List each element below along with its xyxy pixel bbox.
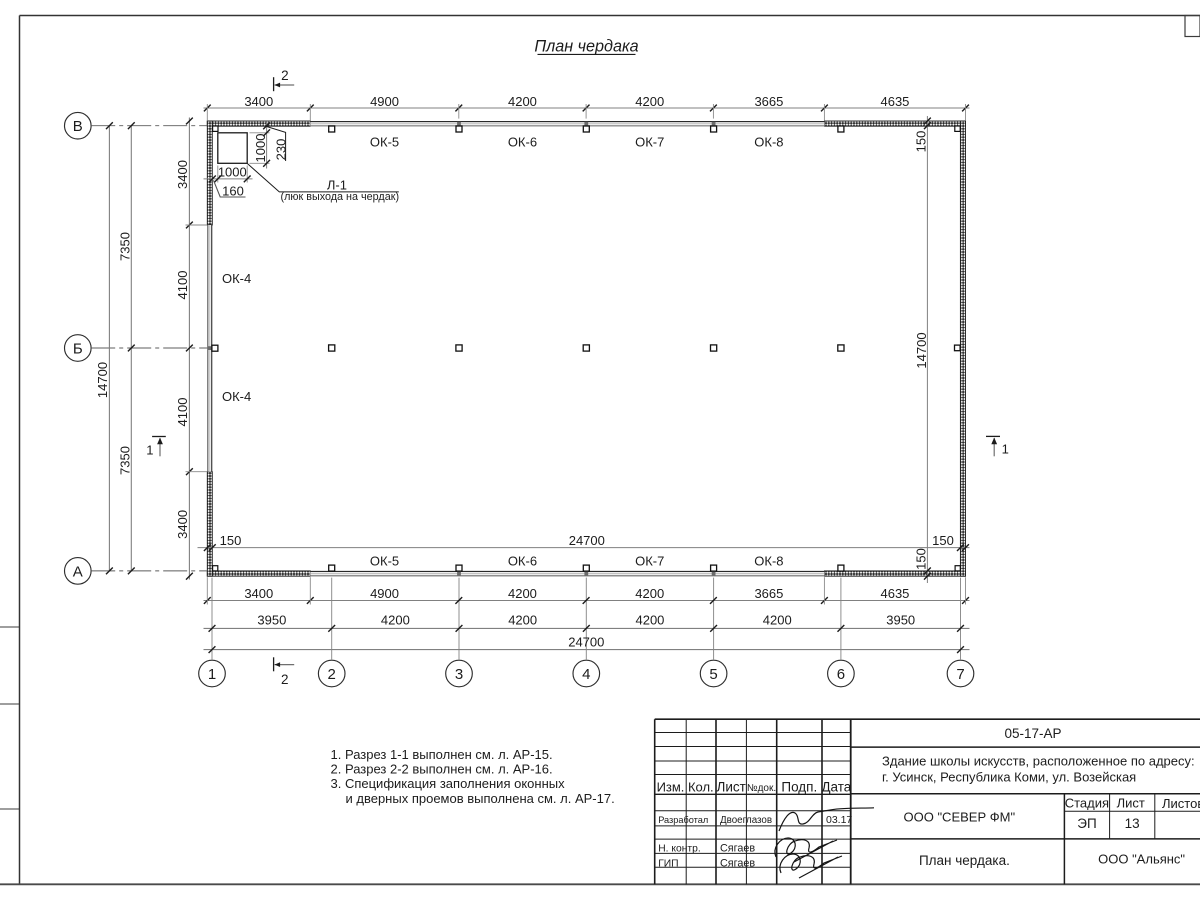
svg-text:7350: 7350 [117,446,132,475]
svg-text:150: 150 [914,131,929,153]
svg-text:7350: 7350 [117,232,132,261]
svg-text:ОК-7: ОК-7 [635,553,664,568]
svg-text:150: 150 [932,533,954,548]
svg-text:1: 1 [208,666,216,683]
svg-text:Кол.: Кол. [688,780,714,795]
svg-text:Н. контр.: Н. контр. [658,844,701,855]
svg-text:14700: 14700 [914,332,929,368]
svg-text:4200: 4200 [508,613,537,628]
svg-text:4: 4 [582,666,590,683]
svg-text:3665: 3665 [754,94,783,109]
svg-text:Лист: Лист [717,780,746,795]
svg-text:г. Усинск, Республика Коми, ул: г. Усинск, Республика Коми, ул. Возейска… [882,770,1136,785]
svg-text:Стадия: Стадия [1065,796,1109,811]
svg-text:1000: 1000 [218,164,247,179]
svg-text:В: В [73,118,83,135]
svg-text:ОК-6: ОК-6 [508,134,537,149]
svg-text:4635: 4635 [880,586,909,601]
svg-text:4200: 4200 [381,613,410,628]
svg-text:150: 150 [914,548,929,570]
svg-text:7: 7 [956,666,964,683]
svg-text:ЭП: ЭП [1077,816,1096,831]
svg-text:3950: 3950 [886,613,915,628]
svg-text:ООО "СЕВЕР ФМ": ООО "СЕВЕР ФМ" [904,810,1016,825]
svg-text:24700: 24700 [569,533,605,548]
svg-text:1000: 1000 [253,134,268,163]
svg-text:Дата: Дата [821,780,851,795]
svg-text:2: 2 [328,666,336,683]
svg-text:4200: 4200 [635,94,664,109]
svg-text:150: 150 [220,533,242,548]
svg-text:3400: 3400 [244,586,273,601]
svg-text:ОК-5: ОК-5 [370,553,399,568]
svg-text:3665: 3665 [754,586,783,601]
svg-text:План чердака: План чердака [534,38,638,56]
svg-text:1: 1 [146,442,153,457]
svg-text:4635: 4635 [880,94,909,109]
svg-text:Листов: Листов [1162,796,1200,811]
svg-text:ОК-5: ОК-5 [370,134,399,149]
svg-text:ОК-7: ОК-7 [635,134,664,149]
svg-text:Л-1: Л-1 [327,177,347,192]
svg-text:ОК-4: ОК-4 [222,271,251,286]
svg-text:4200: 4200 [508,586,537,601]
svg-text:ГИП: ГИП [658,858,678,869]
svg-text:ОК-8: ОК-8 [754,134,783,149]
svg-text:ОК-8: ОК-8 [754,553,783,568]
svg-text:03.17: 03.17 [826,814,852,826]
svg-text:4900: 4900 [370,94,399,109]
svg-text:24700: 24700 [568,634,604,649]
svg-text:3. Спецификация заполнения око: 3. Спецификация заполнения оконных [331,776,566,791]
svg-text:Здание школы искусств, располо: Здание школы искусств, расположенное по … [882,754,1195,769]
svg-text:4200: 4200 [635,613,664,628]
svg-text:А: А [73,563,83,580]
svg-text:2: 2 [281,672,289,687]
svg-text:4200: 4200 [635,586,664,601]
svg-text:План чердака.: План чердака. [919,853,1010,868]
svg-text:ООО "Альянс": ООО "Альянс" [1098,852,1185,867]
svg-text:13: 13 [1125,816,1140,831]
svg-text:Сягаев: Сягаев [720,843,755,855]
svg-text:Б: Б [73,340,83,357]
svg-text:3: 3 [455,666,463,683]
svg-text:14700: 14700 [95,362,110,398]
svg-text:3950: 3950 [257,613,286,628]
svg-text:4200: 4200 [763,613,792,628]
svg-text:6: 6 [837,666,845,683]
svg-text:1. Разрез 1-1 выполнен см. л.: 1. Разрез 1-1 выполнен см. л. АР-15. [331,747,553,762]
svg-text:230: 230 [273,139,288,161]
svg-text:Лист: Лист [1117,796,1145,811]
svg-text:Подп.: Подп. [781,780,817,795]
svg-text:ОК-6: ОК-6 [508,553,537,568]
svg-text:(люк выхода на чердак): (люк выхода на чердак) [281,191,400,203]
svg-text:Изм.: Изм. [657,780,685,795]
svg-text:4900: 4900 [370,586,399,601]
svg-text:и дверных проемов выполнена см: и дверных проемов выполнена см. л. АР-17… [346,791,615,806]
svg-text:3400: 3400 [175,160,190,189]
svg-text:Двоеглазов: Двоеглазов [720,815,772,826]
svg-text:3400: 3400 [175,510,190,539]
svg-text:3400: 3400 [244,94,273,109]
svg-text:4200: 4200 [508,94,537,109]
svg-text:4100: 4100 [175,398,190,427]
svg-text:Сягаев: Сягаев [720,857,755,869]
svg-text:160: 160 [222,183,244,198]
svg-text:1: 1 [1002,442,1009,457]
svg-text:ОК-4: ОК-4 [222,389,251,404]
svg-text:4100: 4100 [175,271,190,300]
svg-text:05-17-АР: 05-17-АР [1004,726,1061,741]
svg-text:2. Разрез 2-2 выполнен см. л.: 2. Разрез 2-2 выполнен см. л. АР-16. [331,762,553,777]
svg-text:5: 5 [709,666,717,683]
svg-text:Разработал: Разработал [658,815,708,825]
svg-text:2: 2 [281,68,289,83]
svg-text:№док.: №док. [747,783,776,794]
